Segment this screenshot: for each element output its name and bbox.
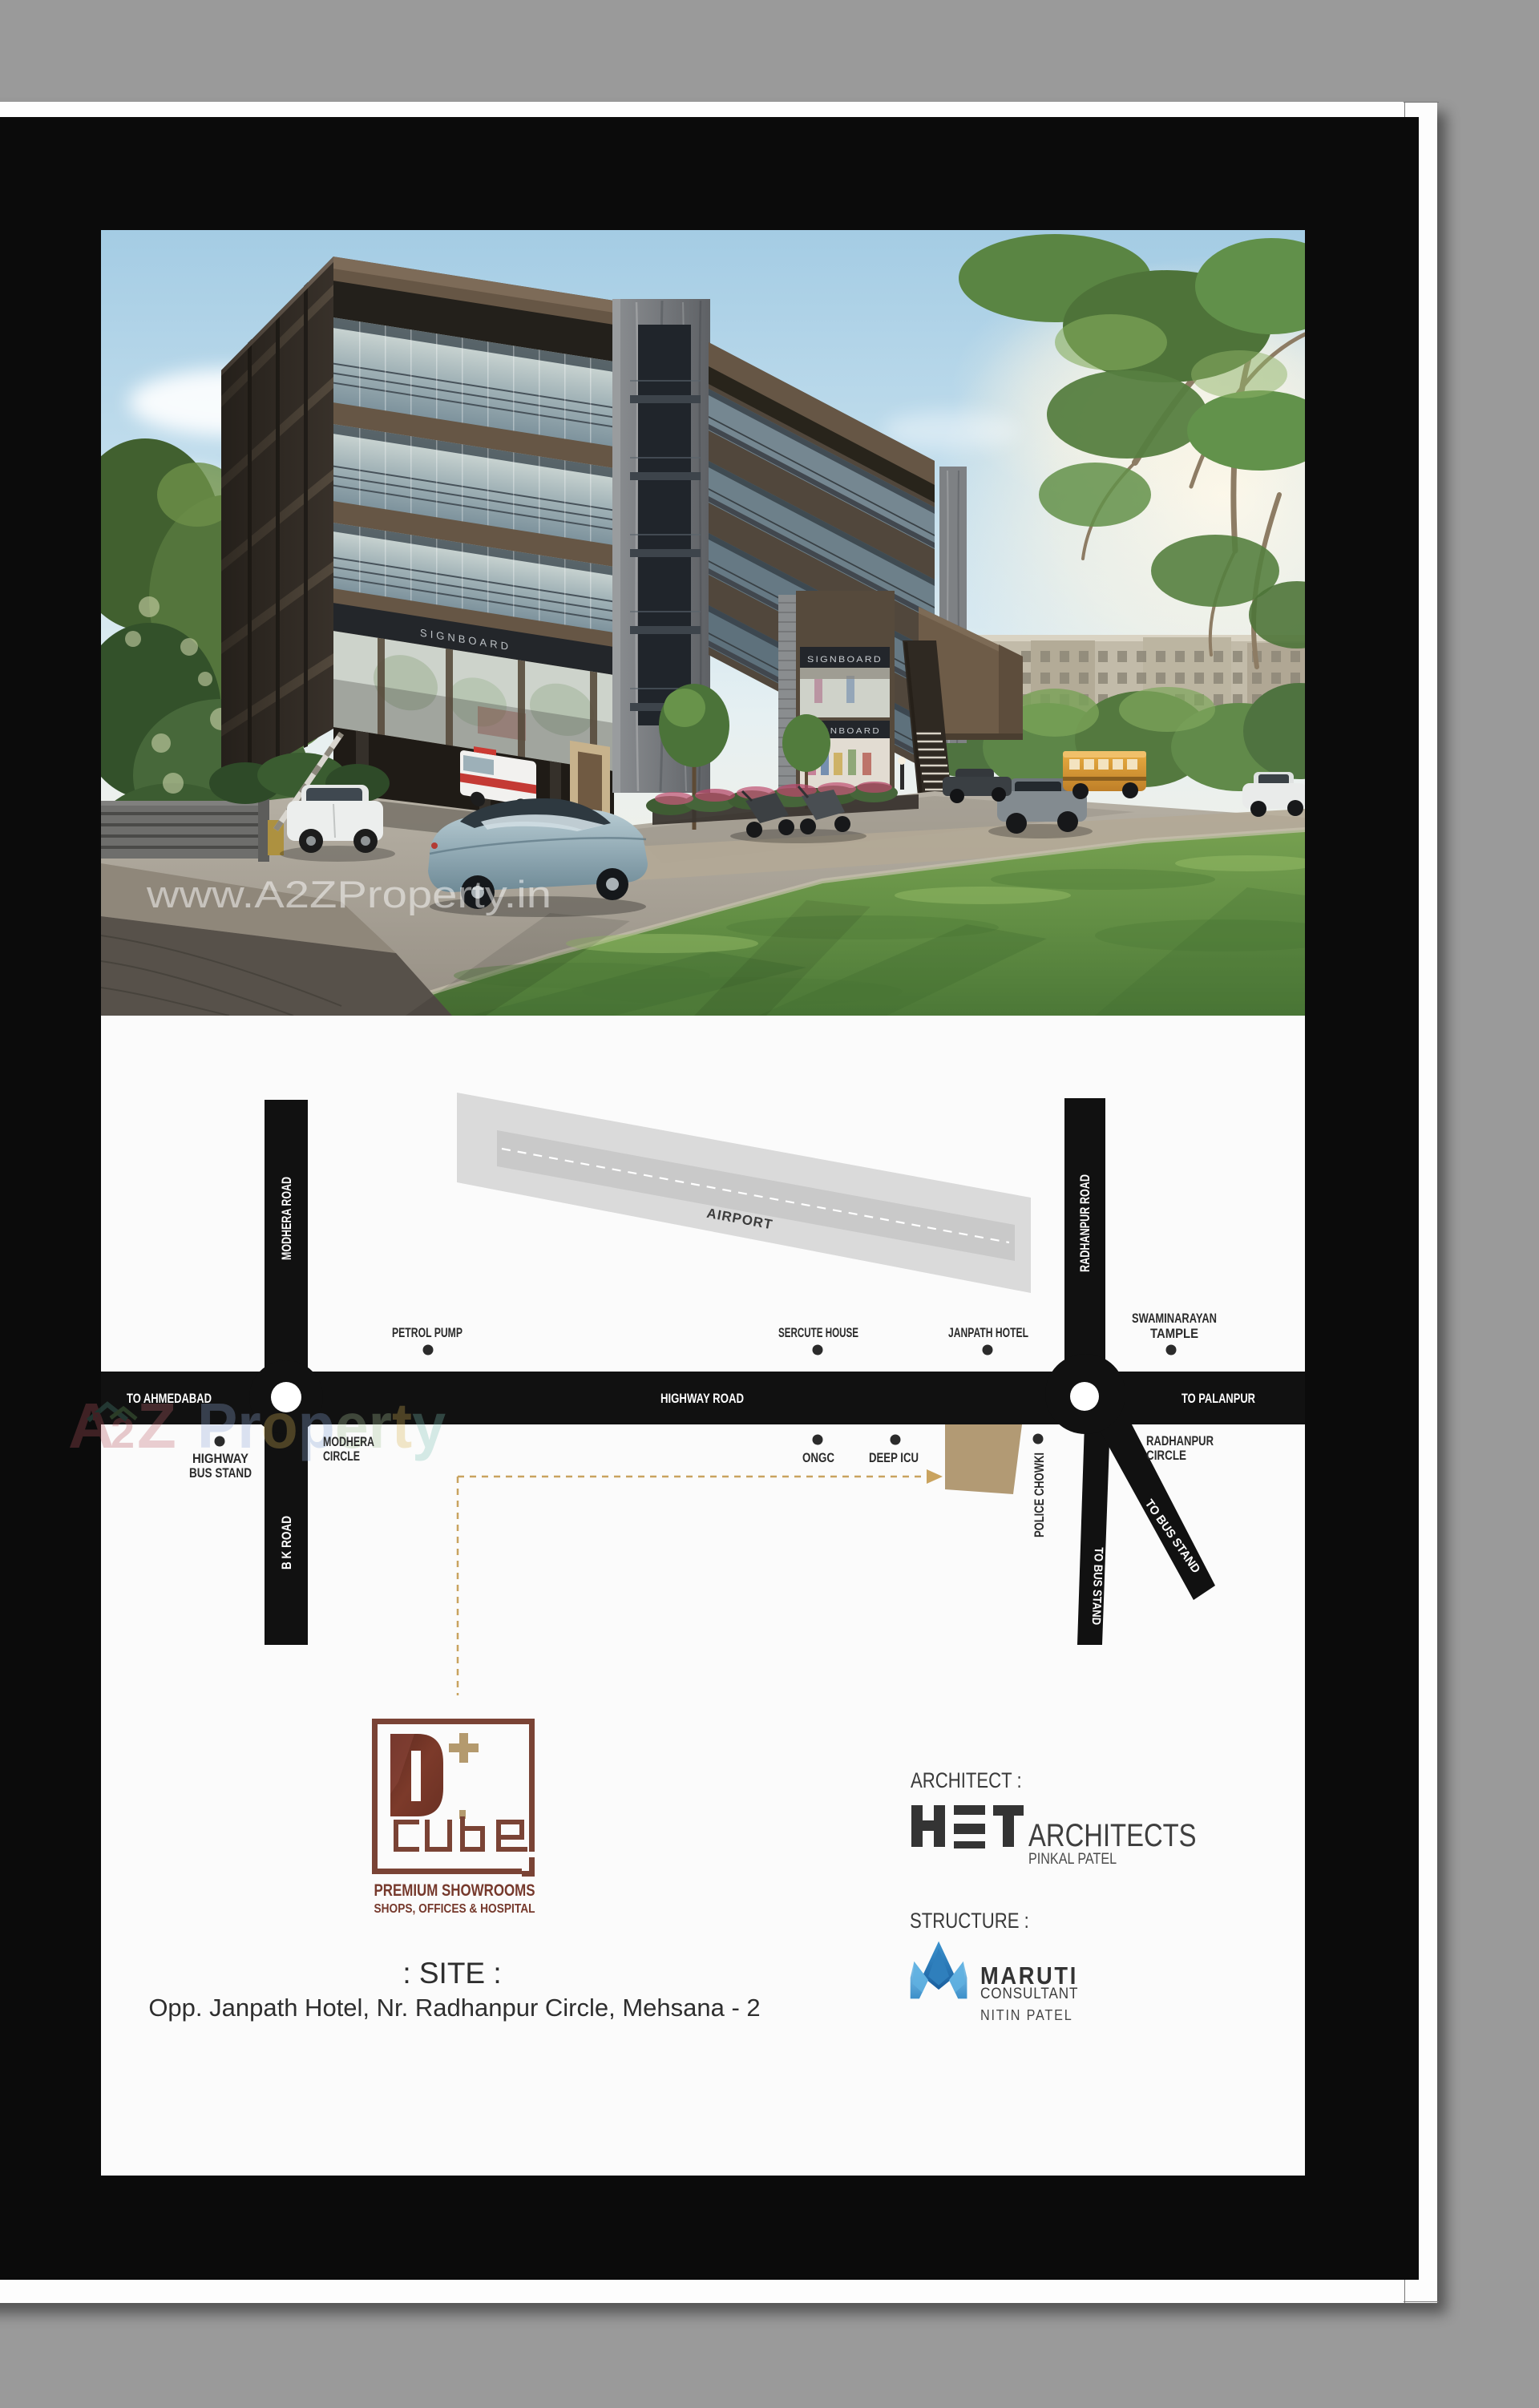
svg-text:CIRCLE: CIRCLE: [323, 1448, 360, 1464]
svg-text:BUS STAND: BUS STAND: [189, 1465, 252, 1481]
svg-text:ONGC: ONGC: [802, 1450, 834, 1465]
svg-text:MODHERA: MODHERA: [323, 1434, 374, 1449]
svg-text:TO PALANPUR: TO PALANPUR: [1182, 1391, 1255, 1406]
svg-text:TAMPLE: TAMPLE: [1150, 1326, 1198, 1341]
svg-text:MODHERA ROAD: MODHERA ROAD: [279, 1177, 294, 1260]
svg-text:PREMIUM SHOWROOMS: PREMIUM SHOWROOMS: [374, 1881, 535, 1900]
svg-text:PETROL PUMP: PETROL PUMP: [392, 1325, 463, 1340]
svg-text:DEEP ICU: DEEP ICU: [869, 1450, 919, 1465]
svg-text:SERCUTE HOUSE: SERCUTE HOUSE: [778, 1325, 858, 1340]
svg-text:HIGHWAY: HIGHWAY: [192, 1451, 249, 1466]
svg-text:HIGHWAY ROAD: HIGHWAY ROAD: [660, 1391, 744, 1406]
svg-text:RADHANPUR ROAD: RADHANPUR ROAD: [1077, 1174, 1093, 1272]
svg-text:B K ROAD: B K ROAD: [279, 1516, 294, 1570]
svg-text:TO AHMEDABAD: TO AHMEDABAD: [127, 1391, 212, 1406]
svg-text:RADHANPUR: RADHANPUR: [1146, 1433, 1214, 1448]
svg-text:CIRCLE: CIRCLE: [1146, 1448, 1186, 1463]
svg-text:JANPATH HOTEL: JANPATH HOTEL: [948, 1325, 1028, 1340]
svg-text:POLICE CHOWKI: POLICE CHOWKI: [1032, 1452, 1047, 1537]
svg-text:www.A2ZProperty.in: www.A2ZProperty.in: [146, 873, 551, 915]
svg-text:SIGNBOARD: SIGNBOARD: [807, 655, 883, 665]
svg-text:A: A: [68, 1390, 115, 1461]
svg-text:TO BUS STAND: TO BUS STAND: [1089, 1547, 1105, 1626]
svg-text:SHOPS, OFFICES & HOSPITAL: SHOPS, OFFICES & HOSPITAL: [374, 1902, 535, 1916]
svg-text:SWAMINARAYAN: SWAMINARAYAN: [1132, 1311, 1217, 1326]
